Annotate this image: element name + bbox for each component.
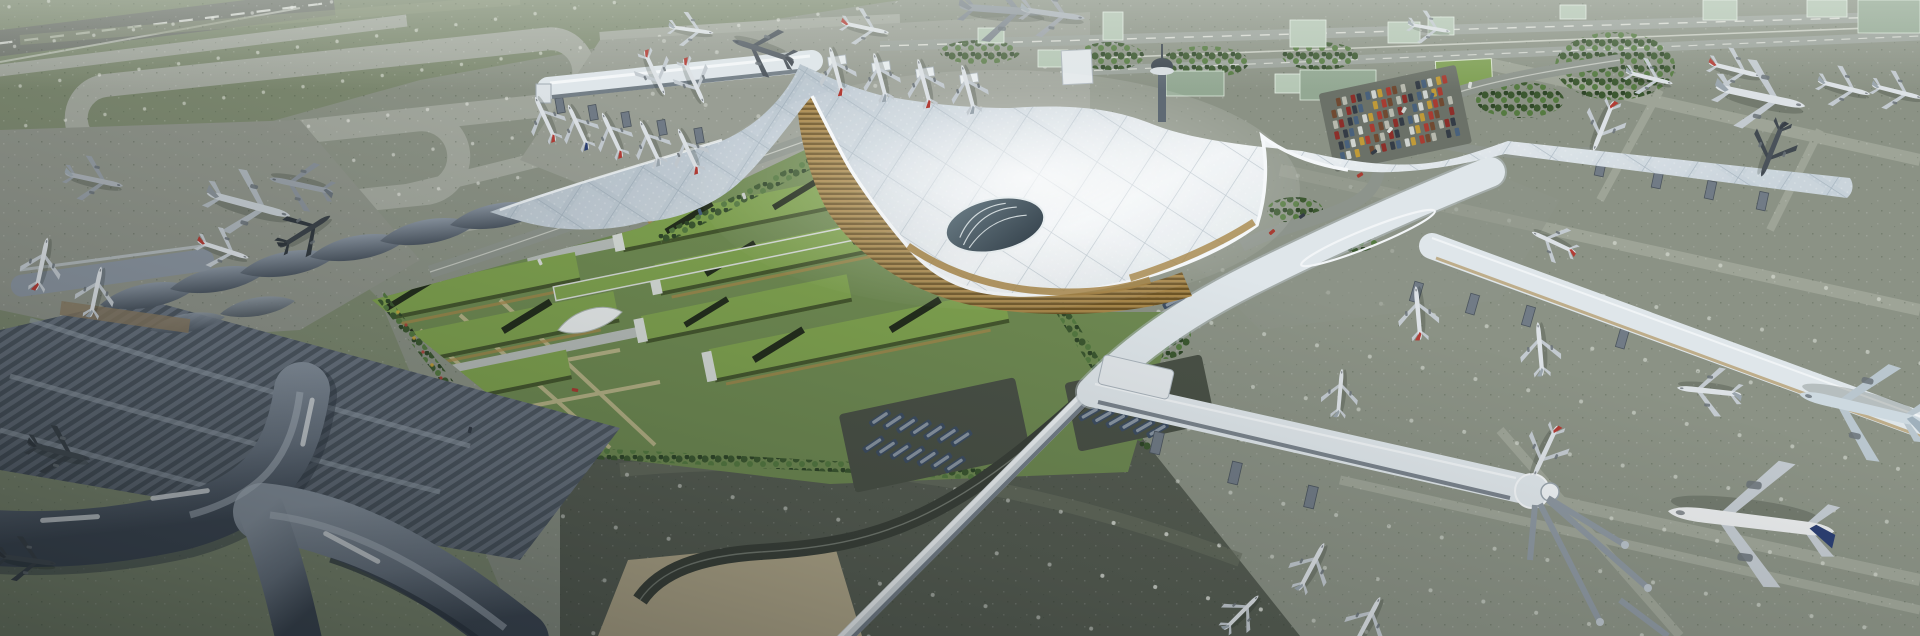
scene-canvas (0, 0, 1920, 636)
southwest-shadow (0, 0, 1920, 636)
airport-aerial-render (0, 0, 1920, 636)
lighting-overlays (0, 0, 1920, 636)
atmospheric-haze (0, 0, 1920, 90)
